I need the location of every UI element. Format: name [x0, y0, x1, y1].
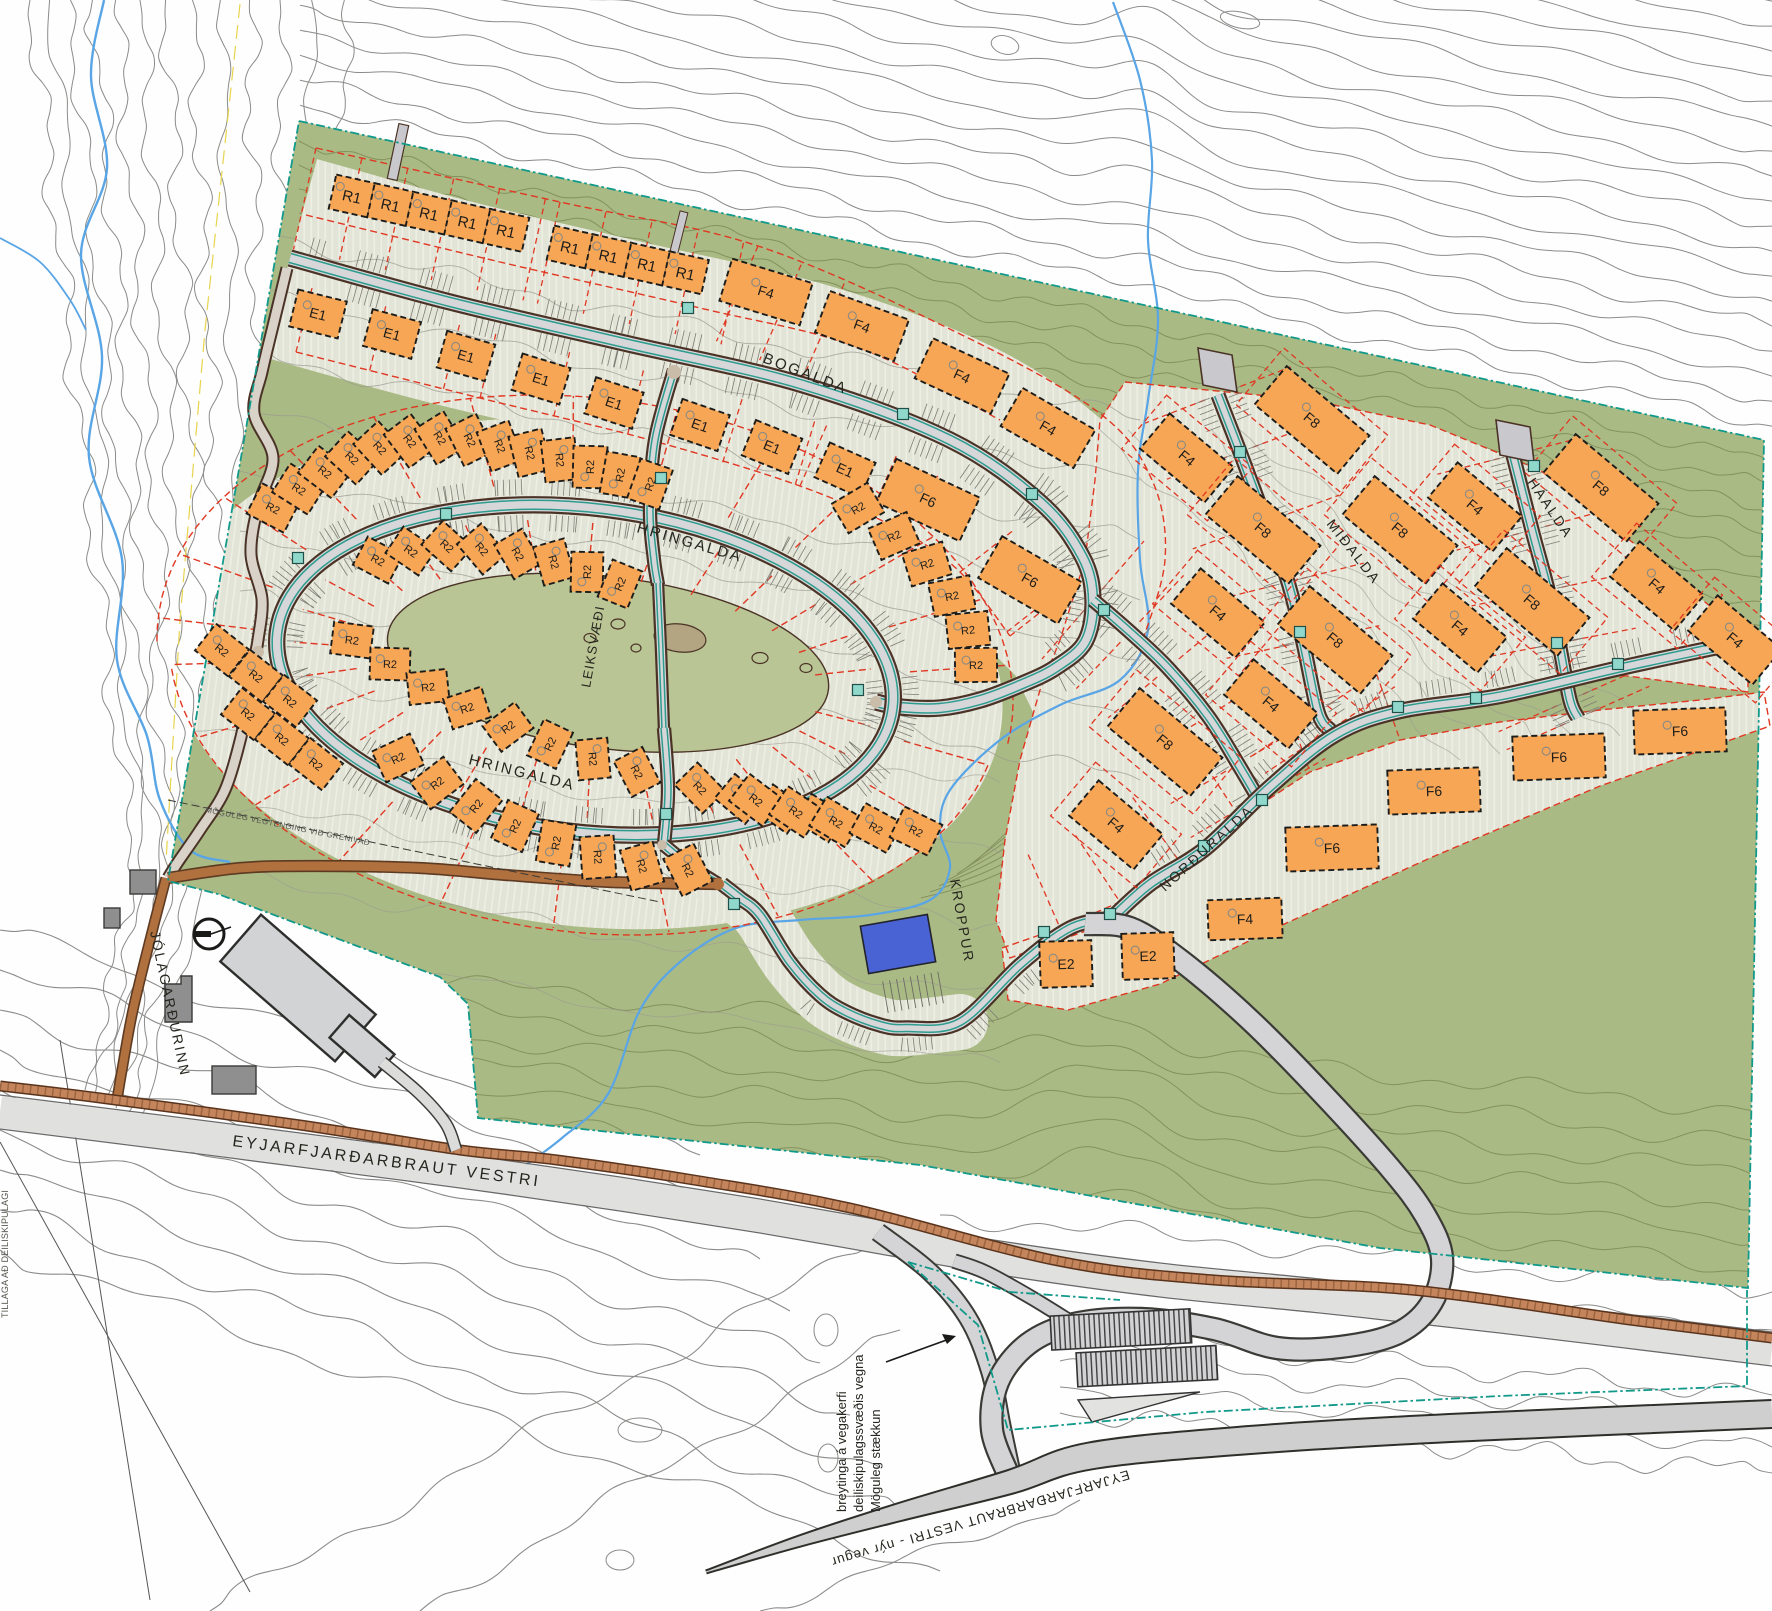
svg-text:deiliskipulagssvæðis vegna: deiliskipulagssvæðis vegna: [851, 1354, 866, 1512]
svg-text:F6: F6: [1672, 723, 1689, 740]
svg-text:R2: R2: [585, 460, 597, 474]
svg-text:F4: F4: [1237, 911, 1254, 928]
svg-text:R2: R2: [344, 634, 359, 648]
svg-text:F6: F6: [1426, 783, 1443, 800]
svg-text:R2: R2: [969, 660, 983, 672]
svg-text:R2: R2: [585, 752, 598, 767]
svg-text:TILLAGA AÐ DEILISKIPULAGI: TILLAGA AÐ DEILISKIPULAGI: [0, 1190, 10, 1318]
svg-text:F6: F6: [1324, 840, 1341, 857]
svg-text:R2: R2: [552, 452, 566, 467]
svg-text:R2: R2: [960, 624, 975, 637]
svg-text:breytinga á vegakerfi: breytinga á vegakerfi: [834, 1391, 849, 1512]
svg-text:R2: R2: [582, 565, 594, 579]
svg-text:R2: R2: [420, 681, 435, 694]
svg-text:R2: R2: [550, 835, 564, 851]
svg-text:F6: F6: [1551, 749, 1568, 766]
svg-text:Möguleg stækkun: Möguleg stækkun: [868, 1409, 883, 1512]
svg-text:E2: E2: [1057, 956, 1075, 973]
svg-text:R2: R2: [591, 850, 604, 865]
svg-text:R2: R2: [383, 659, 397, 671]
svg-text:E2: E2: [1139, 948, 1157, 965]
svg-text:R2: R2: [614, 467, 628, 483]
